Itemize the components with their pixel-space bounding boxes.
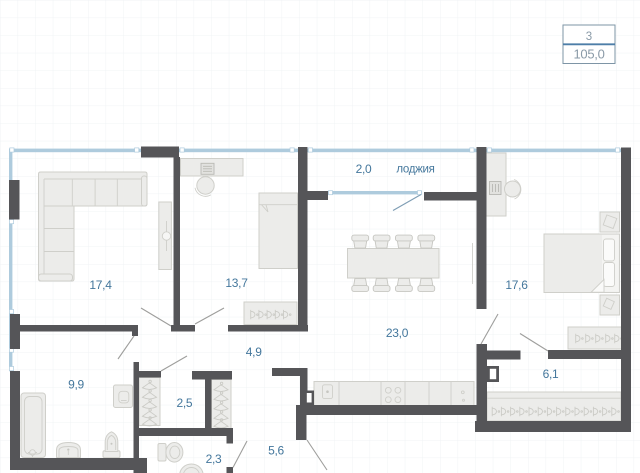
svg-text:17,4: 17,4	[89, 278, 112, 292]
svg-text:13,7: 13,7	[225, 276, 248, 290]
svg-text:105,0: 105,0	[573, 46, 604, 61]
svg-text:5,6: 5,6	[268, 444, 284, 458]
svg-text:17,6: 17,6	[505, 278, 528, 292]
svg-text:6,1: 6,1	[543, 367, 559, 381]
svg-text:2,5: 2,5	[177, 396, 193, 410]
svg-text:2,3: 2,3	[206, 452, 222, 466]
svg-text:9,9: 9,9	[68, 378, 84, 392]
svg-text:лоджия: лоджия	[396, 164, 434, 176]
svg-text:3: 3	[586, 31, 592, 43]
svg-text:4,9: 4,9	[246, 345, 262, 359]
svg-text:2,0: 2,0	[356, 162, 372, 176]
svg-text:23,0: 23,0	[386, 326, 409, 340]
